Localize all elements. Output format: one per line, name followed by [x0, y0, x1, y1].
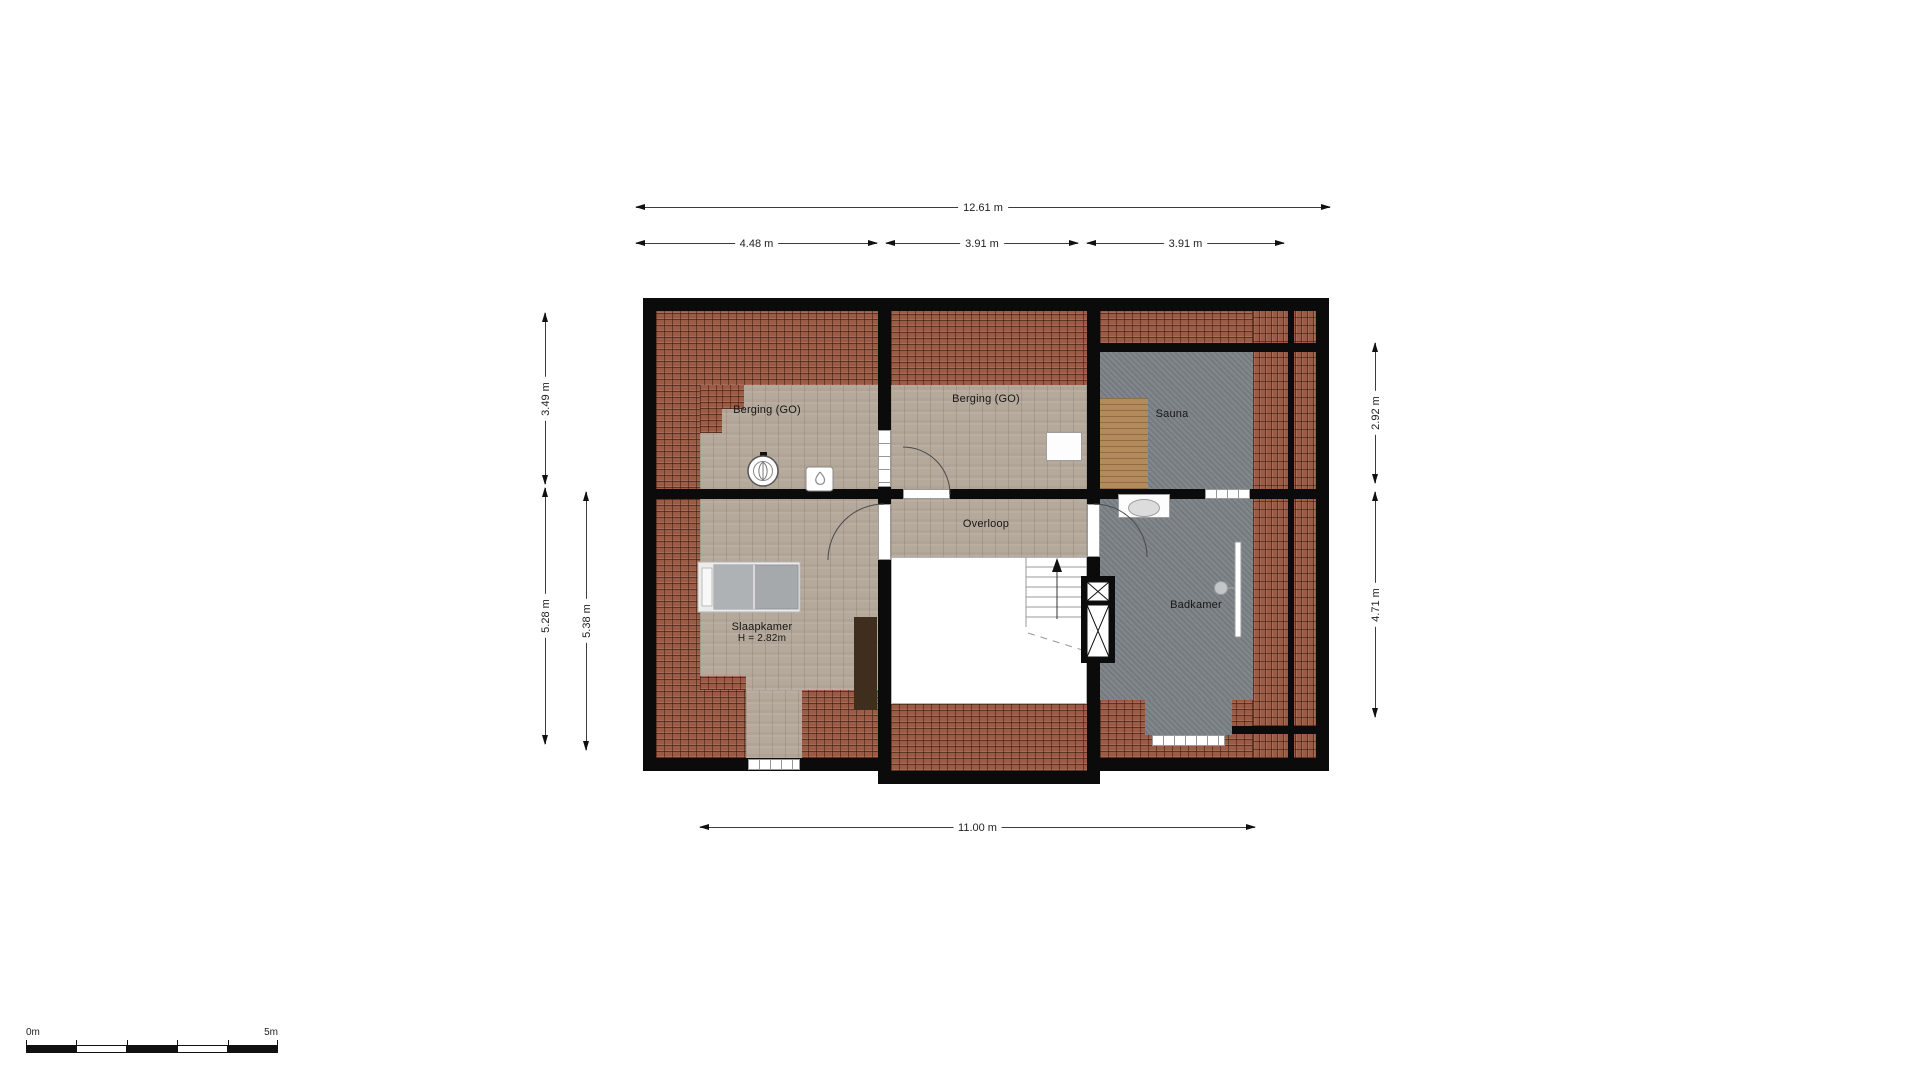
dimension-top-left: 4.48 m — [636, 243, 877, 244]
cabinet — [1046, 432, 1082, 461]
left-dormer-window — [748, 759, 800, 770]
roof-tiles-step-3 — [700, 676, 746, 690]
wood-floor-left-dormer — [746, 690, 802, 759]
room-label-sauna: Sauna — [1156, 408, 1189, 420]
inner-wall-right-strip — [1288, 311, 1294, 758]
badkamer-door — [1087, 504, 1100, 557]
inner-wall-bottom-right — [1232, 726, 1316, 734]
dimension-right-upper: 2.92 m — [1375, 343, 1376, 483]
scale-bar-ticks — [26, 1040, 278, 1046]
sauna-top-wall — [1100, 343, 1316, 352]
outer-wall-bottom-right — [1100, 758, 1329, 771]
roof-tiles-right-strip — [1253, 311, 1316, 758]
dimension-left-outer-upper: 3.49 m — [545, 313, 546, 484]
scale-end-label: 5m — [264, 1027, 278, 1040]
outer-wall-right — [1316, 298, 1329, 771]
dimension-left-outer-lower: 5.28 m — [545, 488, 546, 744]
berging-middle-door-leaf — [903, 489, 950, 499]
room-label-badkamer: Badkamer — [1170, 599, 1222, 611]
slaapkamer-door — [878, 504, 891, 560]
wardrobe — [854, 617, 877, 710]
dimension-left-inner: 5.38 m — [586, 492, 587, 750]
wood-floor-middle-section — [891, 385, 1087, 557]
scale-bar: 0m 5m — [26, 1027, 278, 1053]
sauna-bench — [1100, 398, 1148, 489]
dimension-top-middle: 3.91 m — [886, 243, 1078, 244]
room-label-slaapkamer: Slaapkamer H = 2.82m — [732, 621, 793, 645]
dimension-total-width: 12.61 m — [636, 207, 1330, 208]
room-label-overloop: Overloop — [963, 518, 1009, 530]
washbasin — [1128, 499, 1160, 517]
floor-plan: Berging (GO) Berging (GO) Sauna Overloop… — [0, 0, 1920, 1080]
right-dormer-window — [1152, 735, 1225, 746]
outer-wall-bottom-middle — [878, 771, 1100, 784]
dimension-top-right: 3.91 m — [1087, 243, 1284, 244]
room-label-berging-middle: Berging (GO) — [952, 393, 1020, 405]
room-height-label: H = 2.82m — [732, 633, 793, 645]
outer-wall-left — [643, 298, 656, 771]
interior-wall-horizontal-left — [656, 489, 1087, 499]
floor-plan-page: { "rooms": { "berging_left": "Berging (G… — [0, 0, 1920, 1080]
dimension-bottom-width: 11.00 m — [700, 827, 1255, 828]
roof-tiles-step-1 — [700, 385, 722, 433]
badkamer-window — [1205, 489, 1250, 499]
scale-bar-segments — [26, 1046, 278, 1053]
scale-start-label: 0m — [26, 1027, 40, 1040]
room-label-berging-left: Berging (GO) — [733, 404, 801, 416]
outer-wall-top — [643, 298, 1329, 311]
stairwell-void — [891, 557, 1087, 704]
bathroom-floor-dormer — [1145, 700, 1232, 735]
dimension-right-lower: 4.71 m — [1375, 492, 1376, 717]
window-between-bergings — [878, 430, 891, 487]
